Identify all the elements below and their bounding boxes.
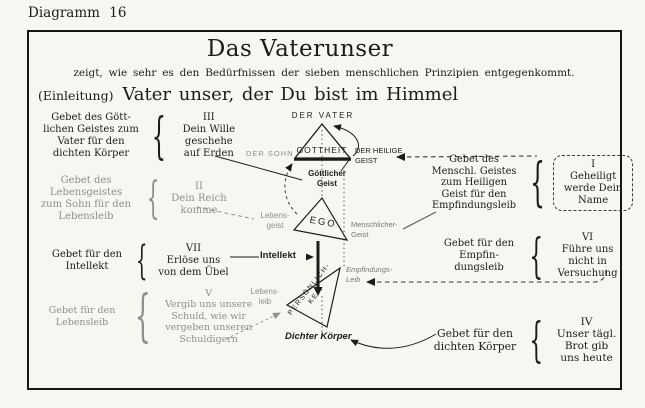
intro-line: (Einleitung) Vater unser, der Du bist im… <box>38 84 458 105</box>
brace-icon <box>152 107 166 165</box>
label-der-vater: DER VATER <box>283 111 363 121</box>
intro-prefix: (Einleitung) <box>38 88 113 103</box>
block-prayer: IVUnser tägl. Brot gibuns heute <box>551 316 623 364</box>
intro-text: Vater unser, der Du bist im Himmel <box>122 84 458 105</box>
label-intellekt: Intellekt <box>260 251 296 261</box>
brace-icon <box>530 153 545 213</box>
page-subtitle: zeigt, wie sehr es den Bedürfnissen der … <box>30 67 618 79</box>
label-der-sohn: DER SOHN <box>246 149 294 159</box>
block-prayer: VIIErlöse uns von dem Übel <box>153 243 233 279</box>
left-block-iii: Gebet des Gött-lichen Geistes zum Vater … <box>38 107 244 165</box>
left-block-ii: Gebet desLebensgeistes zum Sohn für denL… <box>32 173 232 224</box>
block-prayer: IIDein Reich komme <box>166 181 232 217</box>
scanned-diagram-page: Diagramm 16 <box>0 0 645 408</box>
left-block-vii: Gebet für denIntellekt VIIErlöse uns von… <box>44 238 233 284</box>
brace-icon <box>147 173 160 224</box>
label-menschlicher-geist: Menschlicher-Geist <box>351 220 398 239</box>
label-lebensgeist: Lebens-geist <box>252 211 298 230</box>
brace-icon <box>529 312 543 368</box>
block-prayer: IIIDein Wille gescheheauf Erden <box>174 112 244 160</box>
right-block-vi: Gebet für denEmpfin- dungsleib VIFühre u… <box>436 228 625 284</box>
brace-icon <box>136 238 147 284</box>
block-prayer: IGeheiligt werde DeinName <box>553 155 633 211</box>
label-der-heilige-geist: DER HEILIGEGEIST <box>355 146 403 165</box>
diagram-number: Diagramm 16 <box>28 5 126 21</box>
label-dichter-koerper: Dichter Körper <box>285 332 352 342</box>
block-label: Gebet desLebensgeistes zum Sohn für denL… <box>32 175 140 223</box>
block-label: Gebet des Gött-lichen Geistes zum Vater … <box>38 112 144 160</box>
block-label: Gebet für denLebensleib <box>38 305 126 328</box>
page-title: Das Vaterunser <box>60 36 540 62</box>
label-goettlicher-geist: GöttlicherGeist <box>297 169 357 189</box>
brace-icon <box>135 284 151 349</box>
block-prayer: VIFühre uns nicht inVersuchung <box>551 232 625 280</box>
label-lebensleib: Lebens-leib <box>241 287 289 306</box>
block-label: Gebet für denEmpfin- dungsleib <box>436 238 522 274</box>
brace-icon <box>529 228 543 284</box>
block-label: Gebet desMenschl. Geistes zum HeiligenGe… <box>426 154 522 212</box>
block-label: Gebet für dendichten Körper <box>428 327 522 353</box>
block-label: Gebet für denIntellekt <box>44 249 130 273</box>
label-empfindungsleib: Empfindungs-Leib <box>346 265 392 284</box>
right-block-iv: Gebet für dendichten Körper IVUnser tägl… <box>428 312 623 368</box>
right-block-i: Gebet desMenschl. Geistes zum HeiligenGe… <box>426 153 633 213</box>
left-block-v: Gebet für denLebensleib VVergib uns unse… <box>38 284 258 349</box>
label-gottheit: GOTTHEIT <box>292 146 352 156</box>
